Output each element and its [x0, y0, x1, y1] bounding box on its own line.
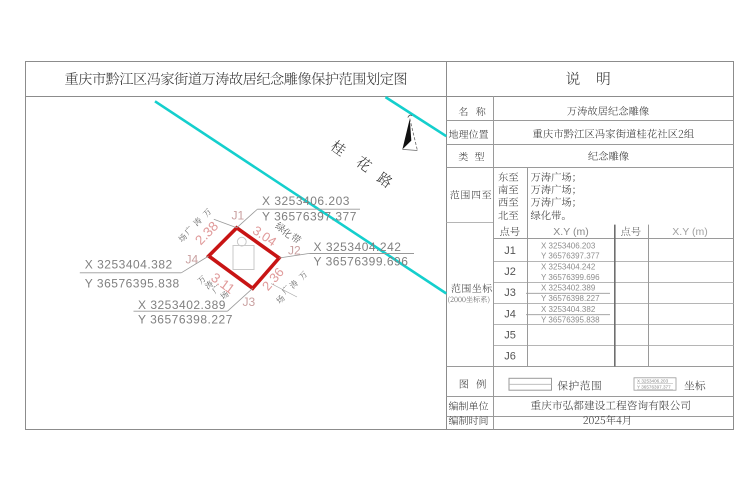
svg-text:J4: J4	[186, 253, 199, 267]
svg-text:X 3253402.389: X 3253402.389	[138, 298, 226, 312]
svg-text:Y 36576398.227: Y 36576398.227	[541, 294, 600, 303]
svg-text:Y 36576395.838: Y 36576395.838	[85, 276, 180, 290]
svg-text:X 3253406.203: X 3253406.203	[262, 194, 350, 208]
svg-text:J1: J1	[232, 209, 245, 223]
svg-text:Y 36576397.377: Y 36576397.377	[541, 252, 600, 261]
svg-text:J6: J6	[504, 350, 516, 362]
svg-text:X 3253406.203: X 3253406.203	[541, 241, 596, 250]
svg-text:Y 36576397.377: Y 36576397.377	[637, 385, 671, 390]
svg-text:X 3253406.203: X 3253406.203	[637, 378, 669, 383]
svg-text:X 3253404.242: X 3253404.242	[541, 262, 596, 271]
svg-text:J1: J1	[504, 245, 516, 257]
svg-text:J5: J5	[504, 330, 516, 342]
svg-text:X.Y (m): X.Y (m)	[553, 226, 588, 238]
svg-text:J3: J3	[504, 287, 516, 299]
svg-text:X 3253402.389: X 3253402.389	[541, 284, 596, 293]
svg-text:X 3253404.242: X 3253404.242	[314, 240, 402, 254]
svg-text:J2: J2	[504, 266, 516, 278]
svg-text:Y 36576397.377: Y 36576397.377	[262, 210, 357, 224]
svg-text:Y 36576395.838: Y 36576395.838	[541, 315, 600, 324]
svg-text:X 3253404.382: X 3253404.382	[85, 257, 173, 271]
svg-text:J4: J4	[504, 309, 516, 321]
svg-text:X 3253404.382: X 3253404.382	[541, 305, 596, 314]
svg-text:Y 36576398.227: Y 36576398.227	[138, 312, 233, 326]
svg-text:X.Y (m): X.Y (m)	[672, 226, 707, 238]
svg-text:J3: J3	[243, 295, 256, 309]
svg-text:Y 36576399.696: Y 36576399.696	[541, 273, 600, 282]
svg-text:Y 36576399.696: Y 36576399.696	[314, 254, 409, 268]
